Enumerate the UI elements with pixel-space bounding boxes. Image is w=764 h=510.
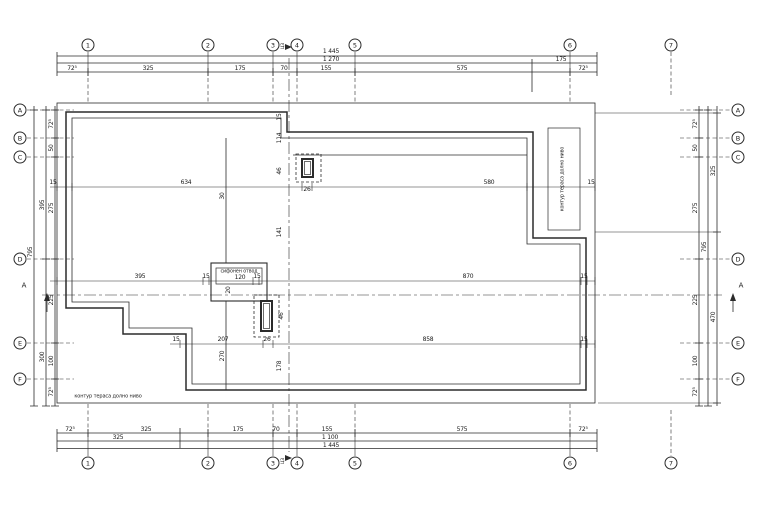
- terrace-contour-outline: [57, 103, 595, 403]
- dim-label-top: 1 445: [323, 49, 339, 55]
- grid-bubble-top-3: 3: [267, 39, 280, 52]
- dim-label-interior: 30: [220, 192, 226, 199]
- dim-label-interior: 15: [202, 274, 209, 280]
- dim-label-left: 395: [40, 200, 46, 211]
- dim-label-right: 795: [702, 242, 708, 253]
- grid-bubble-top-7: 7: [665, 39, 678, 52]
- grid-bubble-left-A: A: [14, 104, 27, 117]
- dim-label-right: 275: [693, 203, 699, 214]
- grid-bubble-top-1: 1: [82, 39, 95, 52]
- dim-label-interior: 634: [181, 180, 192, 186]
- dim-label-interior: 15: [580, 274, 587, 280]
- dim-label-interior: 26: [263, 337, 270, 343]
- center-axis-label-top: ЦЗ: [282, 43, 287, 49]
- dim-label-bottom: 155: [322, 427, 333, 433]
- section-marker-label-right: A: [739, 283, 744, 290]
- dim-label-interior: 207: [218, 337, 229, 343]
- dim-label-bottom: 325: [141, 427, 152, 433]
- dim-label-bottom: 72⁵: [65, 427, 74, 433]
- dim-label-top: 70: [280, 66, 287, 72]
- grid-bubble-right-B: B: [732, 132, 745, 145]
- grid-bubble-bottom-7: 7: [665, 457, 678, 470]
- dim-label-left: 795: [28, 247, 34, 258]
- dim-label-top: 575: [457, 66, 468, 72]
- dim-label-interior: 15: [277, 113, 283, 120]
- dim-label-right: 470: [711, 312, 717, 323]
- grid-bubble-bottom-2: 2: [202, 457, 215, 470]
- dim-label-interior: 15: [587, 180, 594, 186]
- dim-label-right: 72⁵: [693, 119, 699, 128]
- grid-bubble-top-5: 5: [349, 39, 362, 52]
- dim-label-interior: 46: [279, 312, 285, 319]
- dim-label-left: 100: [49, 356, 55, 367]
- dim-label-top: 1 270: [323, 57, 339, 63]
- dim-label-top: 72⁵: [67, 66, 76, 72]
- dim-label-left: 225: [49, 295, 55, 306]
- terrace-contour-label-right: контур тераса долно ниво: [561, 147, 566, 212]
- terrace-contour-label-bottom: контур тераса долно ниво: [74, 394, 141, 399]
- roof-plan-drawing: 1 4451 27017572⁵3251757015557572⁵72⁵3251…: [0, 0, 764, 510]
- grid-bubble-left-F: F: [14, 373, 27, 386]
- dim-label-interior: 141: [277, 227, 283, 238]
- dim-label-interior: 46: [277, 167, 283, 174]
- interior-dim-lines: [50, 183, 595, 348]
- dim-label-interior: 858: [423, 337, 434, 343]
- dim-label-left: 275: [49, 203, 55, 214]
- section-marker-label-left: A: [22, 283, 27, 290]
- drain-label: сифонен отвод: [220, 271, 257, 276]
- roof-outline: [66, 112, 586, 390]
- grid-bubble-bottom-6: 6: [564, 457, 577, 470]
- grid-bubble-bottom-4: 4: [291, 457, 304, 470]
- dim-label-left: 300: [40, 352, 46, 363]
- dim-label-top: 175: [235, 66, 246, 72]
- center-axis-label-bottom: ЦЗ: [282, 458, 287, 464]
- dim-label-interior: 395: [135, 274, 146, 280]
- dim-label-bottom: 70: [272, 427, 279, 433]
- grid-bubble-top-2: 2: [202, 39, 215, 52]
- dim-label-left: 72⁵: [49, 387, 55, 396]
- grid-bubble-left-B: B: [14, 132, 27, 145]
- dim-label-right: 325: [711, 166, 717, 177]
- section-cut-arrows: [44, 293, 736, 312]
- dim-label-interior: 870: [463, 274, 474, 280]
- dim-label-bottom: 1 100: [322, 435, 338, 441]
- dim-label-interior: 580: [484, 180, 495, 186]
- dim-label-interior: 114: [277, 133, 283, 144]
- dim-label-bottom: 325: [113, 435, 124, 441]
- grid-bubble-top-6: 6: [564, 39, 577, 52]
- dim-label-top: 175: [556, 57, 567, 63]
- dim-label-interior: 15: [49, 180, 56, 186]
- dim-label-bottom: 575: [457, 427, 468, 433]
- dim-label-interior: 178: [277, 361, 283, 372]
- grid-bubble-left-E: E: [14, 337, 27, 350]
- grid-bubble-right-E: E: [732, 337, 745, 350]
- dim-label-top: 72⁵: [578, 66, 587, 72]
- grid-bubble-left-D: D: [14, 253, 27, 266]
- grid-bubble-bottom-3: 3: [267, 457, 280, 470]
- dim-label-top: 325: [143, 66, 154, 72]
- grid-bubble-right-F: F: [732, 373, 745, 386]
- dim-label-right: 100: [693, 356, 699, 367]
- center-axis-arrows: [285, 44, 292, 461]
- grid-bubble-left-C: C: [14, 151, 27, 164]
- dim-label-left: 50: [49, 144, 55, 151]
- dim-label-interior: 26: [303, 187, 310, 193]
- grid-bubble-right-C: C: [732, 151, 745, 164]
- grid-bubble-bottom-1: 1: [82, 457, 95, 470]
- dim-label-bottom: 1 445: [323, 443, 339, 449]
- dim-label-bottom: 175: [233, 427, 244, 433]
- dim-label-interior: 15: [172, 337, 179, 343]
- dim-label-bottom: 72⁵: [578, 427, 587, 433]
- dim-label-top: 155: [321, 66, 332, 72]
- dim-label-right: 50: [693, 144, 699, 151]
- chimney-1: [296, 154, 321, 182]
- grid-bubble-top-4: 4: [291, 39, 304, 52]
- dim-label-right: 72⁵: [693, 387, 699, 396]
- dim-label-interior: 15: [580, 337, 587, 343]
- dim-label-left: 72⁵: [49, 119, 55, 128]
- dim-label-right: 225: [693, 295, 699, 306]
- grid-bubble-right-A: A: [732, 104, 745, 117]
- dim-label-interior: 270: [220, 351, 226, 362]
- dim-label-interior: 20: [226, 286, 232, 293]
- grid-bubble-bottom-5: 5: [349, 457, 362, 470]
- grid-bubble-right-D: D: [732, 253, 745, 266]
